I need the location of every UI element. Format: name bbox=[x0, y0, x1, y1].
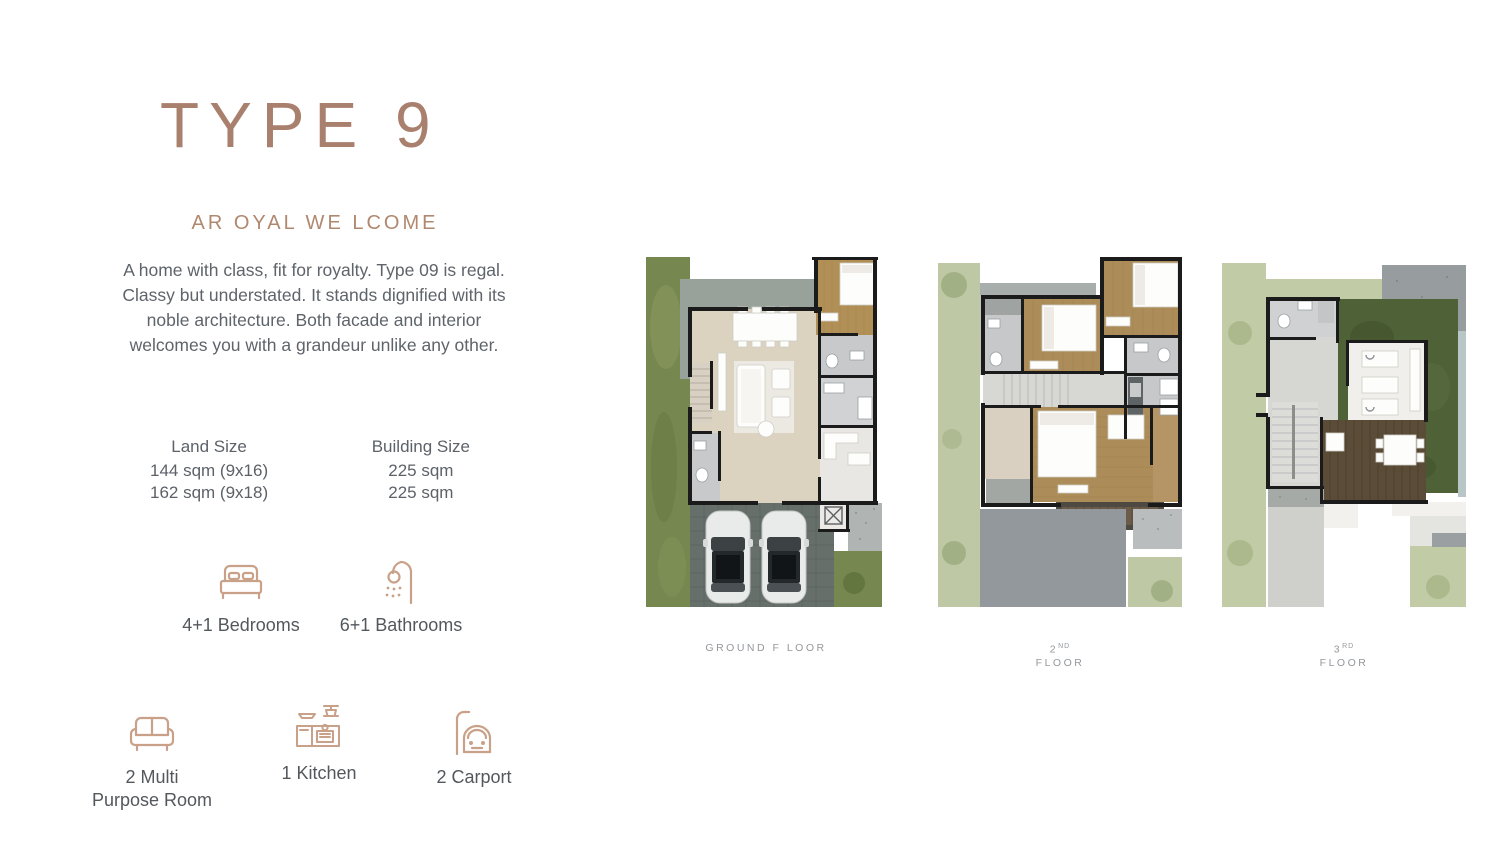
brochure-page: TYPE 9 AR OYAL WE LCOME A home with clas… bbox=[0, 0, 1500, 868]
land-size-column: Land Size 144 sqm (9x16) 162 sqm (9x18) bbox=[150, 436, 268, 505]
second-floor-plan bbox=[938, 257, 1182, 613]
feature-label: 2 Carport bbox=[436, 766, 511, 789]
page-subtitle: AR OYAL WE LCOME bbox=[120, 212, 510, 235]
ground-floor-plan bbox=[644, 257, 888, 613]
building-size-value: 225 sqm bbox=[372, 460, 470, 483]
land-size-value: 162 sqm (9x18) bbox=[150, 482, 268, 505]
feature-bedrooms: 4+1 Bedrooms bbox=[168, 560, 314, 637]
feature-kitchen: 1 Kitchen bbox=[248, 700, 390, 785]
building-size-value: 225 sqm bbox=[372, 482, 470, 505]
land-size-label: Land Size bbox=[150, 436, 268, 459]
size-table: Land Size 144 sqm (9x16) 162 sqm (9x18) … bbox=[150, 436, 470, 505]
bed-icon bbox=[215, 560, 267, 606]
feature-label-line1: 2 Multi bbox=[92, 766, 212, 789]
shower-icon bbox=[382, 556, 420, 606]
feature-bathrooms: 6+1 Bathrooms bbox=[328, 556, 474, 637]
second-floor-label: 2ND FLOOR bbox=[958, 640, 1162, 670]
sofa-icon bbox=[126, 710, 178, 758]
feature-multipurpose: 2 Multi Purpose Room bbox=[78, 710, 226, 812]
ground-floor-label: GROUND F LOOR bbox=[664, 642, 868, 655]
feature-label-line2: Purpose Room bbox=[92, 789, 212, 812]
third-floor-plan bbox=[1222, 257, 1466, 613]
third-floor-label: 3RD FLOOR bbox=[1242, 640, 1446, 670]
description-paragraph: A home with class, fit for royalty. Type… bbox=[118, 258, 510, 358]
kitchen-icon bbox=[293, 700, 345, 754]
car-icon bbox=[451, 706, 497, 758]
feature-carport: 2 Carport bbox=[404, 706, 544, 789]
feature-label: 6+1 Bathrooms bbox=[340, 614, 463, 637]
feature-label: 4+1 Bedrooms bbox=[182, 614, 300, 637]
building-size-label: Building Size bbox=[372, 436, 470, 459]
feature-label: 1 Kitchen bbox=[281, 762, 356, 785]
page-title: TYPE 9 bbox=[160, 88, 441, 162]
building-size-column: Building Size 225 sqm 225 sqm bbox=[372, 436, 470, 505]
land-size-value: 144 sqm (9x16) bbox=[150, 460, 268, 483]
